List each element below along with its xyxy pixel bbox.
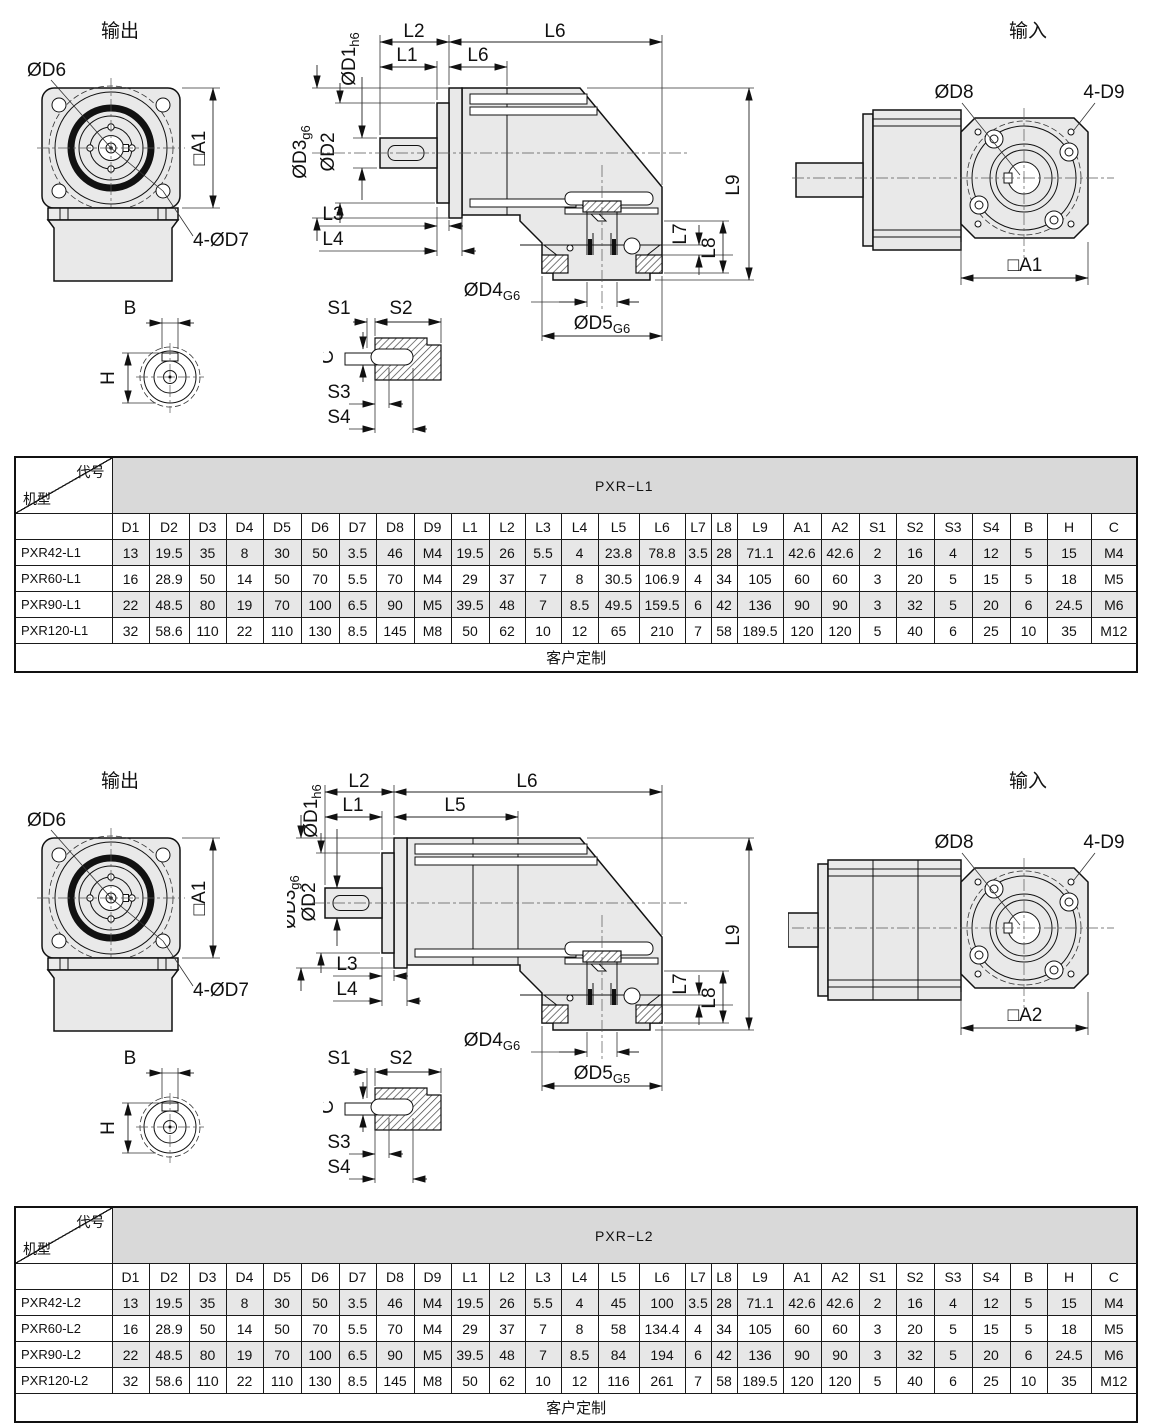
dim-label-od1: ØD1h6 — [339, 32, 362, 86]
column-header: L1 — [451, 1264, 489, 1290]
column-header: L2 — [489, 1264, 525, 1290]
spec-cell: M12 — [1091, 618, 1137, 644]
dim-label-od1: ØD1h6 — [301, 784, 324, 838]
catalog-page: 输出 输入 — [0, 0, 1150, 1427]
model-cell: PXR90-L1 — [15, 592, 112, 618]
output-view-title: 输出 — [55, 16, 185, 43]
column-header: D5 — [263, 514, 301, 540]
column-header: L8 — [711, 1264, 737, 1290]
spec-cell: 50 — [263, 566, 301, 592]
spec-cell: 130 — [301, 1368, 339, 1394]
spec-cell: M6 — [1091, 1342, 1137, 1368]
output-body-below — [48, 958, 178, 1031]
dim-label-4-od7: 4-ØD7 — [193, 980, 249, 1001]
spec-cell: 25 — [972, 1368, 1010, 1394]
output-body-below — [48, 208, 178, 281]
column-header: L6 — [639, 514, 685, 540]
spec-cell: 13 — [112, 540, 149, 566]
spec-cell: 15 — [1047, 540, 1091, 566]
spec-cell: 189.5 — [737, 1368, 783, 1394]
dim-label-l3: L3 — [322, 204, 343, 225]
column-header: D1 — [112, 1264, 149, 1290]
spec-cell: 145 — [376, 618, 414, 644]
dim-label-s4: S4 — [327, 1157, 351, 1178]
section-pxr: 输出 输入 — [0, 0, 1150, 677]
spec-cell: 136 — [737, 592, 783, 618]
column-header: D9 — [414, 1264, 451, 1290]
column-header: D4 — [226, 514, 263, 540]
column-header: L6 — [639, 1264, 685, 1290]
spec-cell: 6 — [685, 592, 711, 618]
spec-cell: 261 — [639, 1368, 685, 1394]
column-header: L7 — [685, 1264, 711, 1290]
spec-cell: 22 — [112, 592, 149, 618]
spec-cell: 5 — [1010, 1290, 1047, 1316]
dim-label-a1-output: □A1 — [189, 131, 210, 166]
column-header: C — [1091, 514, 1137, 540]
spec-cell: 20 — [896, 1316, 934, 1342]
spec-table-wrap: 代号机型PXR−L1D1D2D3D4D5D6D7D8D9L1L2L3L4L5L6… — [14, 456, 1136, 673]
spec-cell: 5 — [1010, 540, 1047, 566]
dim-s2: S2 — [375, 298, 441, 343]
dim-label-l9: L9 — [723, 924, 744, 945]
column-header: L9 — [737, 514, 783, 540]
dim-label-s4: S4 — [327, 407, 351, 428]
spec-cell: 14 — [226, 1316, 263, 1342]
spec-cell: 19.5 — [149, 1290, 189, 1316]
spec-cell: 48.5 — [149, 592, 189, 618]
table-row: PXR120-L13258.6110221101308.5145M8506210… — [15, 618, 1137, 644]
dim-4-d9: 4-D9 — [1074, 832, 1125, 880]
spec-cell: 16 — [112, 1316, 149, 1342]
dim-b: B — [124, 298, 194, 349]
spec-cell: 5 — [859, 618, 896, 644]
column-header: D8 — [376, 1264, 414, 1290]
spec-cell: 30 — [263, 1290, 301, 1316]
spec-cell: 48 — [489, 592, 525, 618]
spec-cell: 5 — [934, 592, 972, 618]
spec-cell: 130 — [301, 618, 339, 644]
spec-cell: 8.5 — [339, 1368, 376, 1394]
spec-cell: 29 — [451, 1316, 489, 1342]
column-header: D8 — [376, 514, 414, 540]
dim-label-l1: L1 — [342, 795, 363, 816]
spec-cell: 110 — [263, 1368, 301, 1394]
spec-cell: 90 — [821, 1342, 859, 1368]
column-header: L9 — [737, 1264, 783, 1290]
spec-cell: 7 — [685, 1368, 711, 1394]
spec-cell: 12 — [561, 1368, 598, 1394]
spec-cell: 3 — [859, 1316, 896, 1342]
spec-cell: 5.5 — [339, 566, 376, 592]
spec-cell: M8 — [414, 618, 451, 644]
section-pxr: 输出 输入 — [0, 750, 1150, 1427]
dim-od4: ØD4G6 — [464, 1030, 639, 1057]
spec-cell: 8 — [226, 540, 263, 566]
dim-l7: L7 — [662, 223, 733, 275]
spec-cell: 120 — [821, 618, 859, 644]
spec-cell: 90 — [821, 592, 859, 618]
spec-cell: 4 — [685, 566, 711, 592]
spec-cell: 58 — [711, 618, 737, 644]
spec-cell: 3.5 — [685, 540, 711, 566]
column-header: D7 — [339, 1264, 376, 1290]
spec-cell: M4 — [414, 1316, 451, 1342]
drawing-shaft-end-view: B H — [100, 1047, 225, 1182]
spec-cell: 45 — [598, 1290, 639, 1316]
spec-cell: 48 — [489, 1342, 525, 1368]
dim-label-4-d9: 4-D9 — [1083, 82, 1124, 103]
column-header: S1 — [859, 1264, 896, 1290]
spec-cell: 40 — [896, 618, 934, 644]
corner-cell: 代号机型 — [15, 457, 112, 514]
dim-label-l4: L4 — [336, 979, 358, 1000]
spec-cell: 16 — [896, 540, 934, 566]
column-header: A1 — [783, 1264, 821, 1290]
spec-cell: 39.5 — [451, 592, 489, 618]
dim-label-od2: ØD2 — [318, 132, 339, 171]
spec-cell: 100 — [639, 1290, 685, 1316]
dim-label-a-input: □A2 — [1008, 1005, 1043, 1026]
output-flange-face — [37, 78, 185, 220]
shaft-end-drawing — [136, 343, 204, 413]
spec-cell: 22 — [112, 1342, 149, 1368]
column-header: S3 — [934, 1264, 972, 1290]
spec-cell: 80 — [189, 1342, 226, 1368]
dim-label-s1: S1 — [327, 298, 350, 319]
column-header: L5 — [598, 1264, 639, 1290]
spec-cell: 3.5 — [685, 1290, 711, 1316]
spec-cell: 106.9 — [639, 566, 685, 592]
spec-cell: 34 — [711, 566, 737, 592]
spec-cell: 28.9 — [149, 1316, 189, 1342]
spec-cell: 70 — [376, 566, 414, 592]
drawing-key-section-view: S1 S2 C S3 S4 — [323, 1048, 463, 1188]
model-cell: PXR120-L1 — [15, 618, 112, 644]
dim-label-s3: S3 — [327, 1132, 350, 1153]
table-row: PXR90-L12248.58019701006.590M539.54878.5… — [15, 592, 1137, 618]
spec-cell: 24.5 — [1047, 1342, 1091, 1368]
column-header: L3 — [525, 514, 561, 540]
drawing-key-section-view: S1 S2 C S3 S4 — [323, 298, 463, 438]
empty-cell — [15, 514, 112, 540]
spec-cell: 58 — [711, 1368, 737, 1394]
dim-label-od2: ØD2 — [299, 882, 320, 921]
spec-cell: 62 — [489, 618, 525, 644]
drawing-input-view: ØD8 4-D9 □A2 — [788, 768, 1138, 1058]
spec-cell: 189.5 — [737, 618, 783, 644]
spec-cell: 42 — [711, 592, 737, 618]
dim-a1-output: □A1 — [182, 838, 220, 958]
spec-cell: 145 — [376, 1368, 414, 1394]
spec-cell: 6 — [934, 618, 972, 644]
dim-label-4-od7: 4-ØD7 — [193, 230, 249, 251]
spec-cell: 16 — [112, 566, 149, 592]
spec-cell: 90 — [783, 592, 821, 618]
dim-a-input: □A2 — [961, 992, 1088, 1035]
spec-cell: 19 — [226, 1342, 263, 1368]
spec-cell: 32 — [112, 1368, 149, 1394]
spec-cell: 7 — [685, 618, 711, 644]
table-title: PXR−L2 — [112, 1207, 1137, 1264]
spec-cell: 42.6 — [821, 1290, 859, 1316]
spec-cell: M5 — [1091, 1316, 1137, 1342]
spec-cell: 4 — [685, 1316, 711, 1342]
spec-cell: 25 — [972, 618, 1010, 644]
spec-cell: 5.5 — [525, 540, 561, 566]
spec-cell: 12 — [561, 618, 598, 644]
spec-cell: 70 — [301, 1316, 339, 1342]
column-header: D1 — [112, 514, 149, 540]
dim-label-s1: S1 — [327, 1048, 350, 1069]
column-header: S2 — [896, 1264, 934, 1290]
spec-cell: 23.8 — [598, 540, 639, 566]
spec-cell: 28.9 — [149, 566, 189, 592]
spec-cell: 5 — [934, 566, 972, 592]
column-header: H — [1047, 514, 1091, 540]
side-body-variant2: L2 L6 L1 L5 ØD1h6 ØD2 ØD3g6 L3 — [287, 771, 662, 1030]
spec-table: 代号机型PXR−L1D1D2D3D4D5D6D7D8D9L1L2L3L4L5L6… — [14, 456, 1138, 673]
spec-cell: 62 — [489, 1368, 525, 1394]
model-cell: PXR42-L1 — [15, 540, 112, 566]
dim-label-l4: L4 — [322, 229, 344, 250]
spec-cell: 28 — [711, 1290, 737, 1316]
dim-label-b: B — [124, 1048, 137, 1069]
spec-cell: 20 — [972, 592, 1010, 618]
table-row: PXR42-L11319.535830503.546M419.5265.5423… — [15, 540, 1137, 566]
spec-cell: 70 — [376, 1316, 414, 1342]
column-header: L5 — [598, 514, 639, 540]
dim-label-od3: ØD3g6 — [287, 875, 302, 929]
spec-cell: 7 — [525, 1316, 561, 1342]
dim-label-h: H — [100, 371, 119, 385]
spec-cell: 18 — [1047, 1316, 1091, 1342]
spec-cell: 50 — [301, 1290, 339, 1316]
dim-label-od4: ØD4G6 — [464, 1030, 520, 1053]
spec-cell: 15 — [1047, 1290, 1091, 1316]
corner-label-bottom: 机型 — [23, 489, 51, 509]
spec-cell: 10 — [525, 618, 561, 644]
spec-cell: 35 — [1047, 1368, 1091, 1394]
spec-cell: 84 — [598, 1342, 639, 1368]
spec-cell: 65 — [598, 618, 639, 644]
column-header: A1 — [783, 514, 821, 540]
column-header: L4 — [561, 514, 598, 540]
spec-cell: 110 — [263, 618, 301, 644]
spec-cell: 32 — [112, 618, 149, 644]
spec-cell: 10 — [1010, 1368, 1047, 1394]
spec-cell: M5 — [414, 1342, 451, 1368]
dim-b: B — [124, 1048, 194, 1099]
spec-cell: 29 — [451, 566, 489, 592]
spec-cell: 19.5 — [149, 540, 189, 566]
spec-cell: M4 — [414, 1290, 451, 1316]
spec-cell: M5 — [414, 592, 451, 618]
spec-cell: 14 — [226, 566, 263, 592]
spec-cell: 2 — [859, 1290, 896, 1316]
column-header: D4 — [226, 1264, 263, 1290]
spec-cell: 10 — [1010, 618, 1047, 644]
spec-cell: 5 — [934, 1342, 972, 1368]
spec-cell: 136 — [737, 1342, 783, 1368]
spec-cell: 90 — [376, 1342, 414, 1368]
column-header: S2 — [896, 514, 934, 540]
spec-cell: 35 — [189, 1290, 226, 1316]
spec-cell: 19.5 — [451, 1290, 489, 1316]
spec-cell: 35 — [1047, 618, 1091, 644]
dim-label-l5: L5 — [444, 795, 465, 816]
column-header: A2 — [821, 514, 859, 540]
corner-label-top: 代号 — [77, 462, 105, 482]
spec-cell: M4 — [1091, 1290, 1137, 1316]
column-header: D2 — [149, 514, 189, 540]
spec-cell: 42.6 — [783, 540, 821, 566]
spec-cell: M4 — [414, 566, 451, 592]
spec-cell: 18 — [1047, 566, 1091, 592]
spec-table: 代号机型PXR−L2D1D2D3D4D5D6D7D8D9L1L2L3L4L5L6… — [14, 1206, 1138, 1423]
spec-cell: 24.5 — [1047, 592, 1091, 618]
dim-label-l8: L8 — [699, 237, 720, 258]
dim-label-od4: ØD4G6 — [464, 280, 520, 303]
drawing-output-view: ØD6 □A1 4-ØD7 — [15, 48, 265, 293]
spec-cell: 100 — [301, 1342, 339, 1368]
dim-label-l6: L6 — [516, 771, 537, 792]
spec-cell: 58 — [598, 1316, 639, 1342]
side-body-variant1: L2 L6 L1 L6 ØD1h6 ØD2 ØD3g6 L3 — [290, 21, 662, 280]
spec-cell: 90 — [376, 592, 414, 618]
spec-cell: 4 — [561, 540, 598, 566]
spec-cell: 159.5 — [639, 592, 685, 618]
spec-cell: 7 — [525, 1342, 561, 1368]
dim-label-h: H — [100, 1121, 119, 1135]
spec-cell: 3.5 — [339, 540, 376, 566]
spec-cell: 194 — [639, 1342, 685, 1368]
spec-cell: 13 — [112, 1290, 149, 1316]
table-title: PXR−L1 — [112, 457, 1137, 514]
spec-cell: 58.6 — [149, 618, 189, 644]
spec-cell: 26 — [489, 540, 525, 566]
spec-cell: 20 — [896, 566, 934, 592]
spec-cell: 100 — [301, 592, 339, 618]
corner-label-top: 代号 — [77, 1212, 105, 1232]
column-header: D3 — [189, 1264, 226, 1290]
spec-cell: 71.1 — [737, 540, 783, 566]
dim-a1-output: □A1 — [182, 88, 220, 208]
spec-cell: 12 — [972, 540, 1010, 566]
spec-cell: 110 — [189, 618, 226, 644]
spec-cell: 210 — [639, 618, 685, 644]
spec-cell: 120 — [783, 1368, 821, 1394]
spec-cell: 22 — [226, 1368, 263, 1394]
dim-label-l7: L7 — [670, 223, 691, 244]
dim-label-l6: L6 — [544, 21, 565, 42]
spec-cell: M5 — [1091, 566, 1137, 592]
spec-cell: 50 — [301, 540, 339, 566]
spec-cell: 120 — [783, 618, 821, 644]
column-header: A2 — [821, 1264, 859, 1290]
table-row: PXR120-L23258.6110221101308.5145M8506210… — [15, 1368, 1137, 1394]
column-header: D9 — [414, 514, 451, 540]
spec-cell: M8 — [414, 1368, 451, 1394]
spec-cell: 5 — [859, 1368, 896, 1394]
dim-label-od3: ØD3g6 — [290, 125, 313, 179]
column-header: D7 — [339, 514, 376, 540]
spec-cell: 8 — [226, 1290, 263, 1316]
dim-label-a-input: □A1 — [1008, 255, 1043, 276]
dim-label-s3: S3 — [327, 382, 350, 403]
spec-cell: 42.6 — [783, 1290, 821, 1316]
spec-cell: 116 — [598, 1368, 639, 1394]
model-cell: PXR90-L2 — [15, 1342, 112, 1368]
spec-cell: 22 — [226, 618, 263, 644]
spec-cell: 15 — [972, 1316, 1010, 1342]
shaft-end-drawing — [136, 1093, 204, 1163]
spec-cell: 58.6 — [149, 1368, 189, 1394]
spec-cell: 8.5 — [561, 592, 598, 618]
column-header: D6 — [301, 514, 339, 540]
spec-cell: 49.5 — [598, 592, 639, 618]
column-header: L4 — [561, 1264, 598, 1290]
dim-label-l3: L3 — [336, 954, 357, 975]
spec-cell: 71.1 — [737, 1290, 783, 1316]
spec-cell: 46 — [376, 540, 414, 566]
dim-label-s2: S2 — [389, 1048, 412, 1069]
spec-cell: 42 — [711, 1342, 737, 1368]
spec-cell: 105 — [737, 566, 783, 592]
dim-label-l7: L7 — [670, 973, 691, 994]
dim-label-c: C — [323, 1100, 338, 1114]
model-cell: PXR60-L1 — [15, 566, 112, 592]
table-row: PXR42-L21319.535830503.546M419.5265.5445… — [15, 1290, 1137, 1316]
input-motor-variant1 — [796, 110, 961, 250]
spec-cell: 46 — [376, 1290, 414, 1316]
spec-cell: 6 — [1010, 1342, 1047, 1368]
spec-cell: 6.5 — [339, 592, 376, 618]
spec-cell: 6.5 — [339, 1342, 376, 1368]
dim-label-l1: L1 — [396, 45, 417, 66]
spec-cell: 7 — [525, 592, 561, 618]
table-footer: 客户定制 — [15, 644, 1137, 673]
spec-cell: 60 — [821, 566, 859, 592]
spec-cell: M4 — [414, 540, 451, 566]
spec-cell: 32 — [896, 1342, 934, 1368]
spec-cell: 3 — [859, 566, 896, 592]
spec-cell: 3.5 — [339, 1290, 376, 1316]
key-section-drawing — [345, 338, 441, 380]
dim-label-od6: ØD6 — [27, 810, 66, 831]
spec-cell: 8 — [561, 1316, 598, 1342]
spec-cell: 35 — [189, 540, 226, 566]
spec-cell: 78.8 — [639, 540, 685, 566]
dim-label-b: B — [124, 298, 137, 319]
spec-cell: M4 — [1091, 540, 1137, 566]
dim-label-od8: ØD8 — [934, 832, 973, 853]
spec-cell: M6 — [1091, 592, 1137, 618]
column-header: L7 — [685, 514, 711, 540]
dim-label-od6: ØD6 — [27, 60, 66, 81]
table-footer: 客户定制 — [15, 1394, 1137, 1423]
drawing-input-view: ØD8 4-D9 □A1 — [788, 18, 1138, 308]
spec-cell: 5 — [1010, 1316, 1047, 1342]
dim-label-l8: L8 — [699, 987, 720, 1008]
dim-label-od8: ØD8 — [934, 82, 973, 103]
dim-label-4-d9: 4-D9 — [1083, 832, 1124, 853]
spec-cell: 42.6 — [821, 540, 859, 566]
empty-cell — [15, 1264, 112, 1290]
spec-cell: 70 — [263, 592, 301, 618]
spec-cell: 48.5 — [149, 1342, 189, 1368]
spec-cell: 37 — [489, 1316, 525, 1342]
